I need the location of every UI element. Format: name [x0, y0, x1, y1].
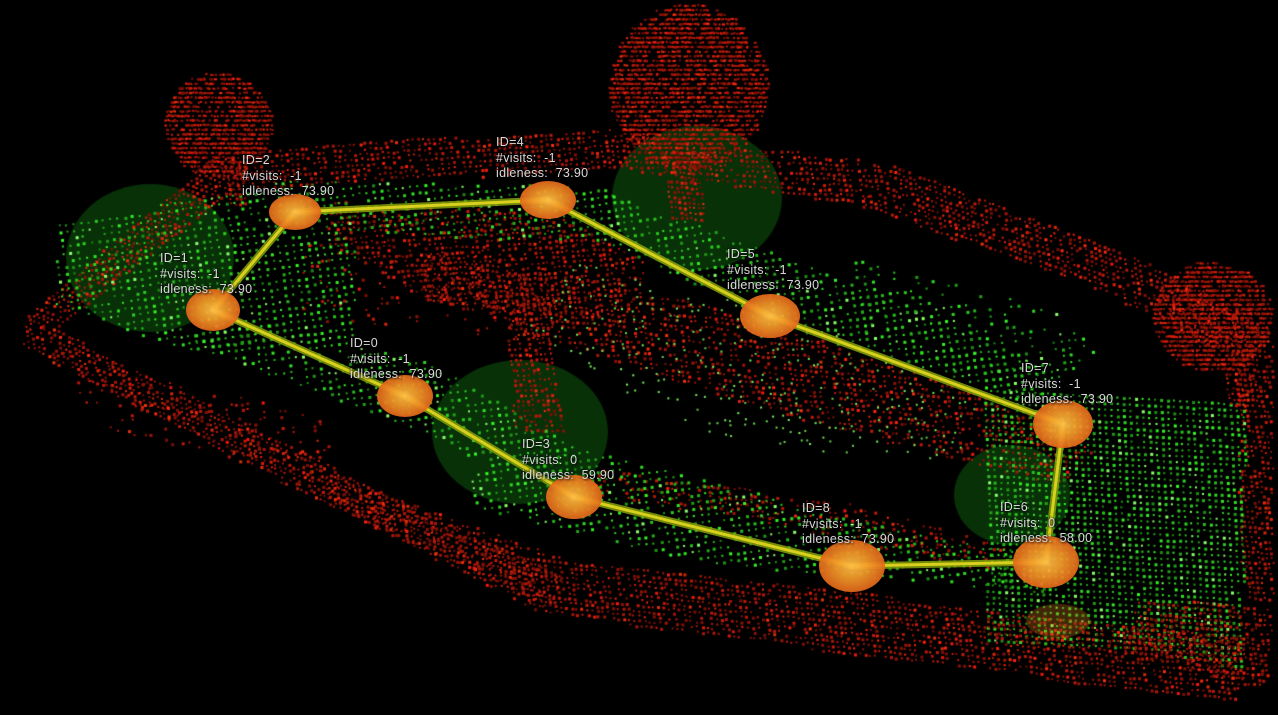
patrol-edge [770, 316, 1063, 424]
waypoint-node-marker [1033, 400, 1093, 448]
waypoint-node-marker [546, 475, 602, 519]
waypoint-node-marker [186, 289, 240, 331]
patrol-edge [405, 396, 574, 497]
patrol-edge [574, 497, 852, 566]
rviz-3d-viewport[interactable]: ID=0#visits: -1idleness: 73.90ID=1#visit… [0, 0, 1278, 715]
waypoint-node-marker [377, 375, 433, 417]
waypoint-node-marker [520, 181, 576, 219]
patrol-edge [295, 200, 548, 212]
patrol-edge [548, 200, 770, 316]
waypoint-node-marker [740, 294, 800, 338]
patrol-edge [213, 310, 405, 396]
waypoint-node-marker [269, 194, 321, 230]
waypoint-node-marker [819, 540, 885, 592]
patrol-graph-overlay [0, 0, 1278, 715]
waypoint-node-marker [1013, 536, 1079, 588]
